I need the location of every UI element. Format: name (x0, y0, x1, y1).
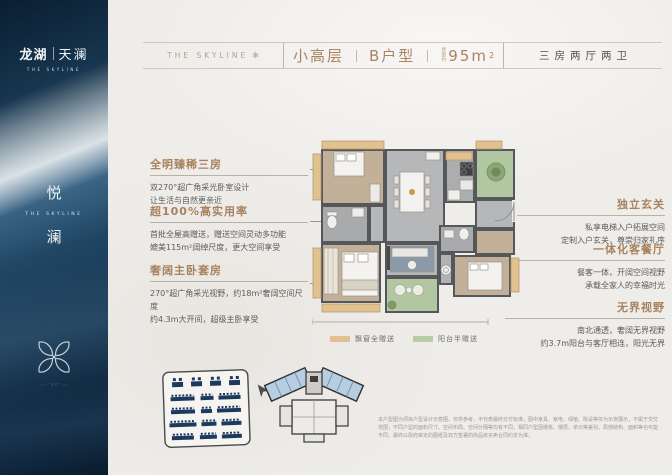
brand-divider (53, 47, 54, 60)
bedroom-3 (476, 230, 514, 254)
floor-type-label: 小高层 (293, 45, 344, 66)
area-prefix-label: 建面约 (440, 48, 447, 64)
legend-item-balcony: 阳台半赠送 (413, 334, 478, 344)
balcony-swatch (413, 336, 433, 342)
core-tower (306, 372, 322, 394)
feature-rule (505, 260, 665, 261)
feature-block-bright-bedrooms: 全明臻稀三房 双270°超广角采光卧室设计 让生活与自然更亲近 (150, 158, 308, 207)
area-superscript: 2 (489, 51, 494, 60)
feature-block-living-dining: 一体化客餐厅 餐客一体，开阔空间视野 承载全家人的幸福时光 (505, 243, 665, 292)
feature-line: 双270°超广角采光卧室设计 (150, 181, 308, 194)
feature-line: 私享电梯入户拓展空间 (505, 221, 665, 234)
feature-block-master-suite: 奢阔主卧套房 270°超广角采光视野，约18m²奢阔空间尺度 约4.3m大开间，… (150, 264, 308, 327)
layout-summary-label: 三房两厅两卫 (504, 43, 662, 68)
separator-line (356, 50, 357, 62)
feature-line: 约4.3m大开间，超级主卧享受 (150, 313, 308, 326)
slogan-char-bottom: 澜 (0, 226, 108, 247)
feature-rule (505, 318, 665, 319)
feature-rule (505, 215, 665, 216)
plan-legend: 飘窗全赠送 阳台半赠送 (330, 334, 478, 344)
feature-title: 一体化客餐厅 (505, 243, 665, 256)
vertical-slogan: 悦 THE SKYLINE 澜 (0, 182, 108, 247)
feature-line: 首批全屋高赠送，赠送空间灵动多功能 (150, 228, 308, 241)
feature-rule (150, 175, 308, 176)
feature-line: 承载全家人的幸福时光 (505, 279, 665, 292)
feature-line: 南北通透，奢阔无界视野 (505, 324, 665, 337)
header-logo-cell: THE SKYLINE ✻ (143, 43, 283, 68)
area-value: 95m (448, 47, 488, 65)
brand-name-left: 龙湖 (19, 44, 47, 63)
feature-line: 餐客一体，开阔空间视野 (505, 266, 665, 279)
feature-title: 无界视野 (505, 301, 665, 314)
disclaimer-text: 本户型图为项目户型设计示意图，仅供参考，不代表最终交付标准，图中家具、家电、绿植… (378, 416, 658, 440)
legend-label: 飘窗全赠送 (355, 334, 395, 344)
flower-logo-icon (31, 334, 77, 390)
legend-item-bay-window: 飘窗全赠送 (330, 334, 395, 344)
header-strip: THE SKYLINE ✻ 小高层 B户型 建面约 95m 2 三房两厅两卫 (143, 42, 662, 69)
flourish-icon: ✻ (252, 51, 259, 60)
header-logo-text: THE SKYLINE (167, 51, 248, 60)
feature-rule (150, 222, 308, 223)
sidebar: 龙湖 天澜 THE SKYLINE 悦 THE SKYLINE 澜 (0, 0, 108, 475)
entry-hall (476, 200, 514, 228)
main-panel: THE SKYLINE ✻ 小高层 B户型 建面约 95m 2 三房两厅两卫 全… (108, 0, 672, 475)
feature-block-private-foyer: 独立玄关 私享电梯入户拓展空间 定制入户玄关，尊崇归家礼序 (505, 198, 665, 247)
brand-name-right: 天澜 (59, 44, 89, 63)
brand-en-label: THE SKYLINE (0, 67, 108, 72)
building-key-plan (262, 354, 366, 458)
feature-title: 超100%高实用率 (150, 205, 308, 218)
feature-title: 全明臻稀三房 (150, 158, 308, 171)
bay-window-swatch (330, 336, 350, 342)
site-plan-map (162, 368, 253, 453)
poster-canvas: 龙湖 天澜 THE SKYLINE 悦 THE SKYLINE 澜 (0, 0, 672, 475)
slogan-char-top: 悦 (0, 182, 108, 203)
brand-logo: 龙湖 天澜 THE SKYLINE (0, 44, 108, 72)
unit-type-label: B户型 (369, 45, 415, 66)
feature-block-high-efficiency: 超100%高实用率 首批全屋高赠送，赠送空间灵动多功能 媲美115m²阔绰尺度，… (150, 205, 308, 254)
feature-line: 媲美115m²阔绰尺度，更大空间享受 (150, 241, 308, 254)
feature-block-open-view: 无界视野 南北通透，奢阔无界视野 约3.7m阳台与客厅相连，阳光无界 (505, 301, 665, 350)
separator-line (427, 50, 428, 62)
dimension-line (312, 319, 488, 325)
corridor (370, 206, 384, 242)
feature-title: 独立玄关 (505, 198, 665, 211)
feature-line: 约3.7m阳台与客厅相连，阳光无界 (505, 337, 665, 350)
slogan-en: THE SKYLINE (0, 212, 108, 217)
floor-plan (312, 138, 524, 344)
feature-rule (150, 281, 308, 282)
feature-line: 270°超广角采光视野，约18m²奢阔空间尺度 (150, 287, 308, 313)
header-title-cell: 小高层 B户型 建面约 95m 2 (283, 43, 504, 68)
feature-title: 奢阔主卧套房 (150, 264, 308, 277)
legend-label: 阳台半赠送 (438, 334, 478, 344)
